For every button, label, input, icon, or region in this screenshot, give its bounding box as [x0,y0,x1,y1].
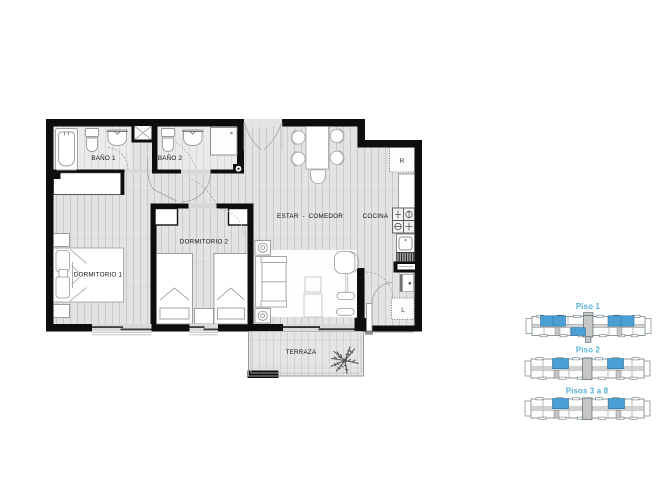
svg-text:COCINA: COCINA [363,213,389,220]
svg-text:BAÑO 1: BAÑO 1 [91,153,116,162]
svg-text:TERRAZA: TERRAZA [286,349,317,356]
svg-text:Piso 1: Piso 1 [576,302,601,311]
svg-text:L: L [401,307,405,314]
svg-text:Piso 2: Piso 2 [576,346,601,355]
svg-text:ESTAR - COMEDOR: ESTAR - COMEDOR [277,213,343,220]
svg-text:DORMITORIO 1: DORMITORIO 1 [74,272,123,279]
svg-text:Pisos 3 a 8: Pisos 3 a 8 [566,387,609,396]
svg-text:DORMITORIO 2: DORMITORIO 2 [180,239,229,246]
svg-text:R: R [400,158,405,165]
svg-text:BAÑO 2: BAÑO 2 [158,153,183,162]
